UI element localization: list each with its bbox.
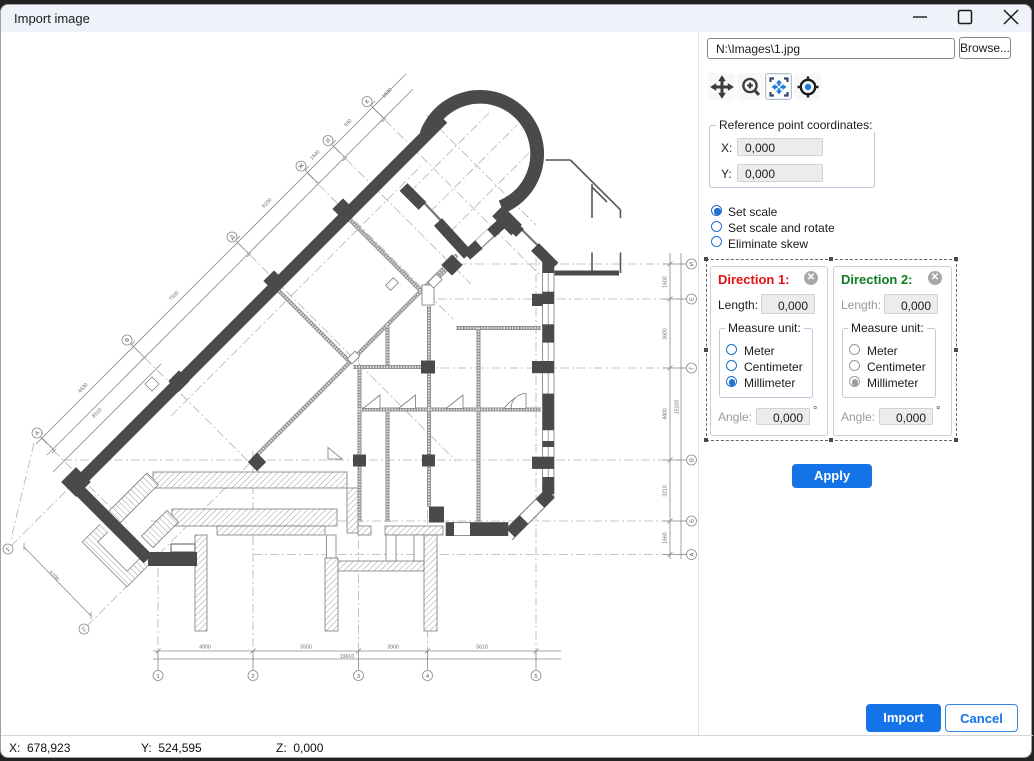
svg-text:И: И [690, 262, 696, 266]
svg-text:Е: Е [690, 297, 696, 301]
svg-text:5610: 5610 [476, 645, 488, 651]
svg-text:3600: 3600 [663, 328, 669, 340]
svg-text:5: 5 [534, 674, 537, 680]
svg-text:Б: Б [690, 519, 696, 523]
svg-text:15100: 15100 [675, 400, 681, 415]
svg-text:2: 2 [251, 674, 254, 680]
svg-text:6100: 6100 [261, 197, 273, 209]
svg-text:3210: 3210 [663, 485, 669, 497]
svg-text:В: В [690, 458, 696, 462]
svg-text:3: 3 [357, 674, 360, 680]
svg-text:5700: 5700 [48, 570, 60, 582]
svg-text:1660: 1660 [663, 532, 669, 544]
svg-text:4400: 4400 [663, 408, 669, 420]
svg-text:930: 930 [343, 118, 353, 128]
svg-text:7500: 7500 [168, 290, 180, 302]
svg-text:А: А [690, 552, 696, 556]
svg-text:19610: 19610 [340, 654, 355, 660]
svg-text:1630: 1630 [381, 87, 393, 99]
svg-text:5500: 5500 [300, 645, 312, 651]
svg-text:4900: 4900 [199, 645, 211, 651]
svg-text:1: 1 [156, 674, 159, 680]
svg-text:3900: 3900 [387, 645, 399, 651]
svg-text:1640: 1640 [309, 149, 321, 161]
svg-text:1600: 1600 [663, 276, 669, 288]
